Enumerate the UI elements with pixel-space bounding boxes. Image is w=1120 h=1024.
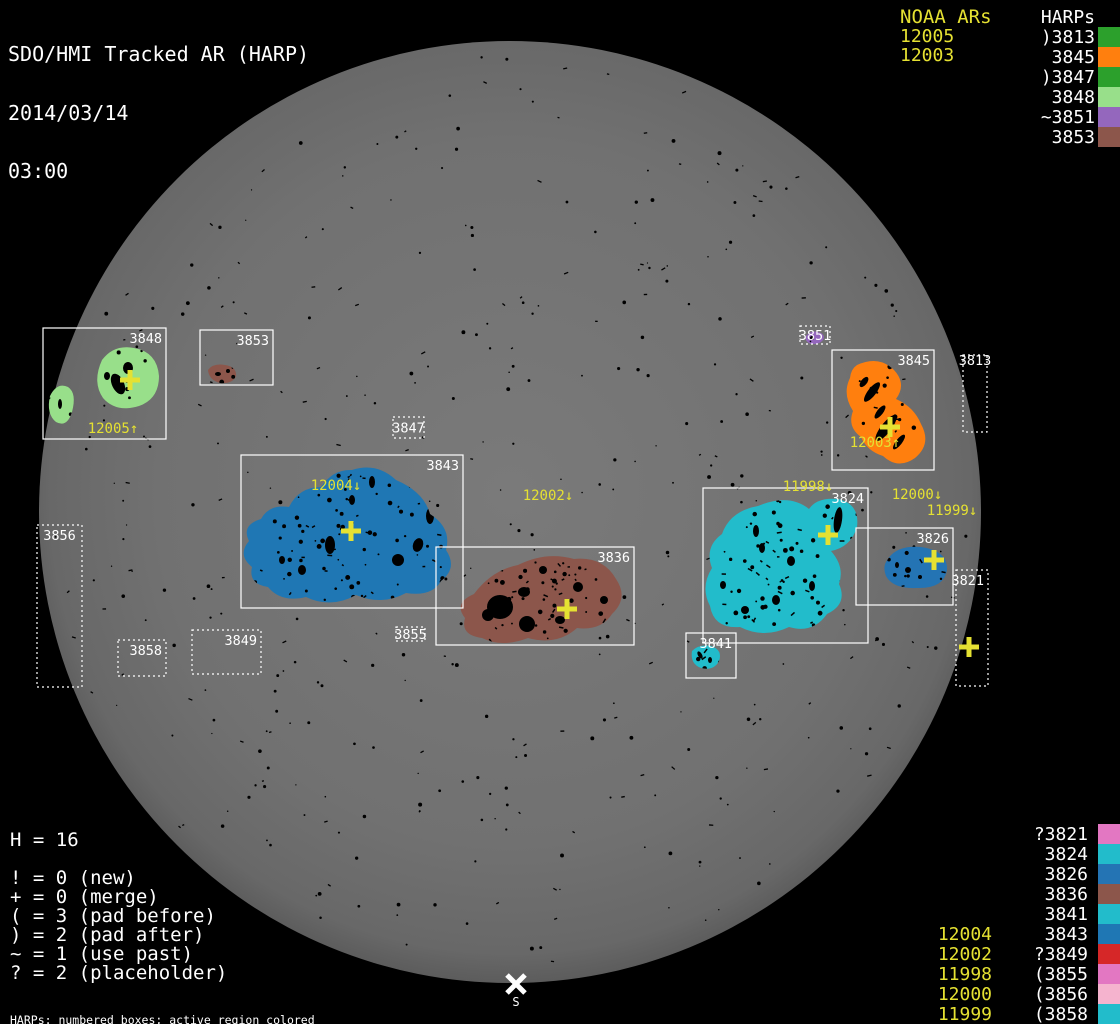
harp-list-row: 3841	[820, 904, 1120, 924]
harp-number: ?3849	[992, 944, 1088, 965]
harp-list-row: 12002?3849	[820, 944, 1120, 964]
harp-number: )3813	[1041, 27, 1095, 48]
harp-region-3855: 3855	[394, 627, 427, 643]
harp-list-row: 3845	[880, 47, 1120, 67]
harp-color-swatch	[1098, 844, 1120, 864]
harp-list-row: )3847	[880, 67, 1120, 87]
noaa-disk-label: 12004↓	[311, 478, 362, 494]
harp-color-swatch	[1098, 127, 1120, 147]
harp-number: ?3821	[992, 824, 1088, 845]
active-region-3826	[884, 547, 947, 588]
harp-box-label: 3841	[699, 636, 732, 652]
active-region-blob	[884, 547, 947, 588]
harp-color-swatch	[1098, 984, 1120, 1004]
harp-box-label: 3851	[799, 328, 832, 344]
harp-box-label: 3856	[43, 528, 76, 544]
harp-color-swatch	[1098, 944, 1120, 964]
harp-list-row: 120043843	[820, 924, 1120, 944]
noaa-ar-number: 12000	[930, 984, 992, 1005]
harp-color-swatch	[1098, 67, 1120, 87]
harp-list-row: 12000(3856	[820, 984, 1120, 1004]
harp-list-row: ?3821	[820, 824, 1120, 844]
harp-list-east-items: )38133845)38473848~38513853	[880, 27, 1120, 147]
harp-box-label: 3843	[426, 458, 459, 474]
noaa-disk-label: 12005↑	[88, 421, 139, 437]
noaa-ar-number: 11999	[930, 1004, 992, 1024]
harp-color-swatch	[1098, 27, 1120, 47]
footnote-harps: HARPs: numbered boxes; active region col…	[10, 1014, 412, 1024]
harp-color-swatch	[1098, 87, 1120, 107]
observation-date: 2014/03/14	[8, 104, 309, 124]
legend-code-line: ? = 2 (placeholder)	[10, 964, 227, 983]
noaa-disk-label: 11999↓	[927, 503, 978, 519]
harp-box-label: 3853	[236, 333, 269, 349]
harp-box-label: 3848	[129, 331, 162, 347]
harp-number: 3841	[992, 904, 1088, 925]
harp-list-east: HARPs )38133845)38473848~38513853	[880, 8, 1120, 147]
noaa-ar-number: 12002	[930, 944, 992, 965]
harp-color-swatch	[1098, 824, 1120, 844]
app-title: SDO/HMI Tracked AR (HARP)	[8, 45, 309, 65]
harp-region-3851: 3851	[799, 326, 832, 344]
noaa-disk-label: 12000↓	[892, 487, 943, 503]
harp-list-row: 3836	[820, 884, 1120, 904]
harp-list-west: ?3821382438263836384112004384312002?3849…	[820, 824, 1120, 1024]
harp-box-label: 3855	[394, 627, 427, 643]
harp-list-row: 11998(3855	[820, 964, 1120, 984]
south-label: S	[512, 995, 519, 1009]
harp-color-swatch	[1098, 884, 1120, 904]
harp-number: 3836	[992, 884, 1088, 905]
noaa-ar-number: 12004	[930, 924, 992, 945]
harp-list-row: 3853	[880, 127, 1120, 147]
harp-list-header: HARPs	[880, 8, 1120, 27]
harp-box-label: 3824	[831, 491, 864, 507]
harp-box-label: 3826	[916, 531, 949, 547]
harp-number: (3856	[992, 984, 1088, 1005]
harp-color-swatch	[1098, 47, 1120, 67]
harp-number: 3824	[992, 844, 1088, 865]
harp-list-row: 3824	[820, 844, 1120, 864]
harp-color-swatch	[1098, 864, 1120, 884]
harp-number: (3858	[992, 1004, 1088, 1024]
harp-number: 3843	[992, 924, 1088, 945]
harp-region-3847: 3847	[392, 417, 425, 438]
harp-list-row: ~3851	[880, 107, 1120, 127]
noaa-ar-number: 11998	[930, 964, 992, 985]
legend-footnotes: HARPs: numbered boxes; active region col…	[10, 989, 412, 1024]
harp-color-swatch	[1098, 107, 1120, 127]
harp-box-label: 3836	[597, 550, 630, 566]
harp-box-label: 3847	[392, 421, 425, 437]
harp-list-west-items: ?3821382438263836384112004384312002?3849…	[820, 824, 1120, 1024]
harp-box-label: 3858	[129, 643, 162, 659]
harp-number: 3826	[992, 864, 1088, 885]
title-block: SDO/HMI Tracked AR (HARP) 2014/03/14 03:…	[8, 6, 309, 221]
harp-color-swatch	[1098, 964, 1120, 984]
noaa-disk-label: 12003↑	[850, 435, 901, 451]
harp-list-row: 3826	[820, 864, 1120, 884]
harp-number: ~3851	[1041, 107, 1095, 128]
harp-color-swatch	[1098, 904, 1120, 924]
harp-box-label: 3849	[224, 633, 257, 649]
harp-color-swatch	[1098, 924, 1120, 944]
harp-list-row: 3848	[880, 87, 1120, 107]
harp-number: )3847	[1041, 67, 1095, 88]
harp-box-label: 3845	[897, 353, 930, 369]
harp-color-swatch	[1098, 1004, 1120, 1024]
harp-box-label: 3821	[951, 573, 984, 589]
legend-codes: ! = 0 (new)+ = 0 (merge)( = 3 (pad befor…	[10, 869, 227, 983]
harp-number: 3845	[1052, 47, 1095, 68]
harp-list-row: )3813	[880, 27, 1120, 47]
observation-time: 03:00	[8, 162, 309, 182]
harp-box-label: 3813	[959, 353, 992, 369]
noaa-disk-label: 11998↓	[783, 479, 834, 495]
harp-number: 3853	[1052, 127, 1095, 148]
harp-count: H = 16	[10, 829, 79, 851]
noaa-disk-label: 12002↓	[523, 488, 574, 504]
harp-number: 3848	[1052, 87, 1095, 108]
harp-list-row: 11999(3858	[820, 1004, 1120, 1024]
harp-visualization: 3848385338473843383638553856385838493824…	[0, 0, 1120, 1024]
harp-number: (3855	[992, 964, 1088, 985]
